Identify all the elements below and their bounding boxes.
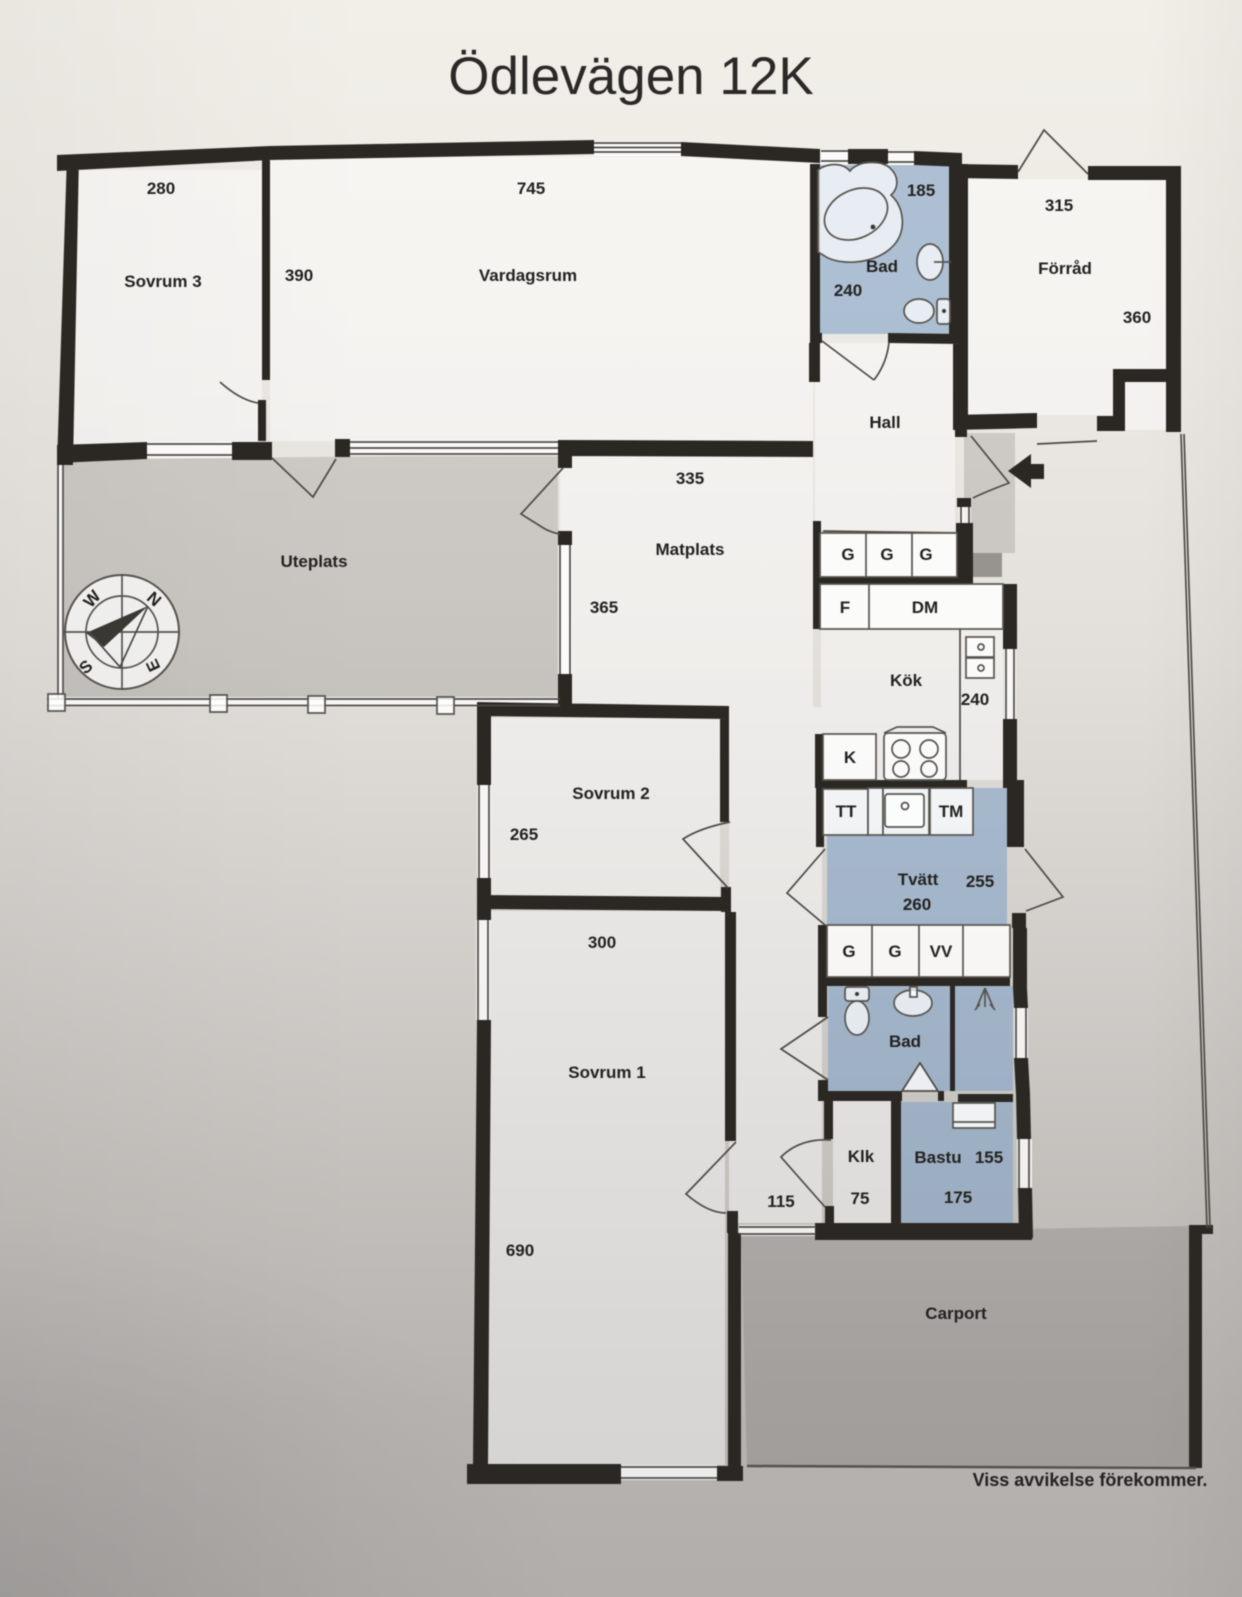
svg-text:335: 335 (676, 469, 704, 488)
svg-text:Uteplats: Uteplats (280, 552, 347, 571)
svg-text:240: 240 (834, 281, 862, 300)
svg-text:Matplats: Matplats (656, 540, 725, 559)
svg-text:Bad: Bad (866, 257, 898, 276)
svg-text:300: 300 (588, 933, 616, 952)
svg-text:75: 75 (851, 1189, 870, 1208)
svg-text:155: 155 (975, 1148, 1003, 1167)
svg-text:G: G (880, 545, 893, 564)
svg-text:365: 365 (590, 598, 618, 617)
svg-text:115: 115 (767, 1192, 794, 1211)
svg-text:G: G (841, 545, 854, 564)
svg-text:265: 265 (510, 825, 538, 844)
svg-text:Viss avvikelse förekommer.: Viss avvikelse förekommer. (973, 1470, 1208, 1490)
svg-text:Klk: Klk (848, 1147, 875, 1166)
svg-text:Kök: Kök (890, 671, 923, 690)
svg-text:280: 280 (147, 179, 175, 198)
svg-text:VV: VV (930, 942, 953, 961)
svg-text:G: G (842, 942, 855, 961)
svg-text:TT: TT (836, 802, 857, 821)
svg-text:Sovrum 1: Sovrum 1 (568, 1063, 645, 1082)
svg-text:745: 745 (517, 179, 545, 198)
svg-text:Bastu: Bastu (914, 1148, 961, 1167)
svg-text:Förråd: Förråd (1038, 259, 1092, 278)
svg-text:Vardagsrum: Vardagsrum (479, 266, 577, 285)
svg-text:Ödlevägen 12K: Ödlevägen 12K (448, 47, 813, 106)
svg-text:G: G (919, 545, 932, 564)
svg-text:260: 260 (903, 895, 931, 914)
svg-text:255: 255 (966, 872, 994, 891)
svg-text:360: 360 (1123, 308, 1151, 327)
svg-text:G: G (888, 942, 901, 961)
svg-text:240: 240 (961, 690, 989, 709)
svg-text:Bad: Bad (889, 1032, 921, 1051)
svg-text:Carport: Carport (925, 1304, 987, 1323)
svg-text:Hall: Hall (869, 413, 900, 432)
svg-text:DM: DM (912, 598, 938, 617)
svg-text:Sovrum 2: Sovrum 2 (572, 784, 649, 803)
svg-text:Tvätt: Tvätt (898, 870, 939, 889)
svg-text:175: 175 (944, 1188, 972, 1207)
svg-text:TM: TM (939, 802, 964, 821)
svg-text:K: K (844, 748, 857, 767)
svg-text:690: 690 (506, 1241, 534, 1260)
svg-text:315: 315 (1045, 196, 1073, 215)
svg-text:Sovrum 3: Sovrum 3 (124, 272, 201, 291)
svg-text:185: 185 (907, 181, 935, 200)
svg-text:F: F (840, 598, 850, 617)
svg-text:390: 390 (285, 266, 313, 285)
